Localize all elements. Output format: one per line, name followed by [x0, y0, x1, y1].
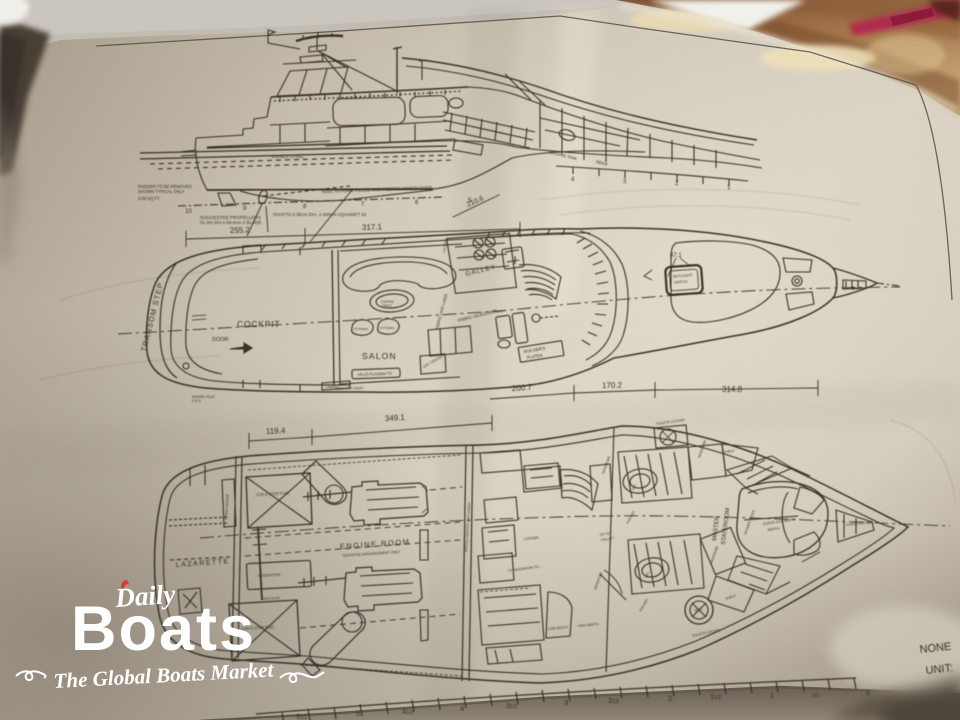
svg-text:HATCH: HATCH	[674, 279, 688, 285]
svg-text:TABLE: TABLE	[382, 304, 392, 308]
svg-text:10: 10	[185, 209, 192, 215]
svg-text:SHOWN TYPICAL ONLY: SHOWN TYPICAL ONLY	[138, 189, 185, 194]
svg-text:317.1: 317.1	[362, 222, 383, 232]
svg-text:5: 5	[356, 709, 360, 718]
svg-text:4: 4	[460, 704, 464, 713]
svg-text:3: 3	[564, 698, 568, 707]
svg-text:Boats: Boats	[71, 594, 256, 664]
svg-text:3.08 SQ FT: 3.08 SQ FT	[138, 196, 160, 201]
svg-text:DOUBLE L2 RAIL: DOUBLE L2 RAIL	[272, 154, 305, 159]
svg-text:SHAFTS 6.35cm DIA. x 340cm A: SHAFTS 6.35cm DIA. x 340cm AQUAMET 22	[273, 212, 367, 217]
svg-text:DOOR: DOOR	[212, 337, 229, 343]
svg-text:119.4: 119.4	[266, 426, 286, 436]
svg-text:P & S: P & S	[192, 399, 201, 403]
svg-text:OTTOMAN: OTTOMAN	[354, 327, 368, 331]
svg-text:COCKPIT: COCKPIT	[237, 319, 280, 329]
svg-text:1/2: 1/2	[812, 693, 819, 699]
svg-text:OTTOMAN: OTTOMAN	[380, 326, 394, 330]
svg-text:2: 2	[668, 694, 672, 703]
svg-text:01.3m DIA x 66.4cm 2 BLADE: 01.3m DIA x 66.4cm 2 BLADE	[200, 220, 262, 225]
svg-text:0: 0	[866, 688, 870, 697]
svg-text:1: 1	[770, 691, 774, 700]
svg-text:255.2: 255.2	[230, 225, 251, 235]
svg-text:E-III: E-III	[852, 286, 860, 291]
svg-text:314.8: 314.8	[722, 385, 743, 394]
svg-text:349.1: 349.1	[385, 413, 406, 423]
svg-text:SALON: SALON	[362, 351, 397, 361]
svg-text:170.2: 170.2	[602, 381, 623, 390]
svg-text:200.7: 200.7	[512, 383, 533, 393]
